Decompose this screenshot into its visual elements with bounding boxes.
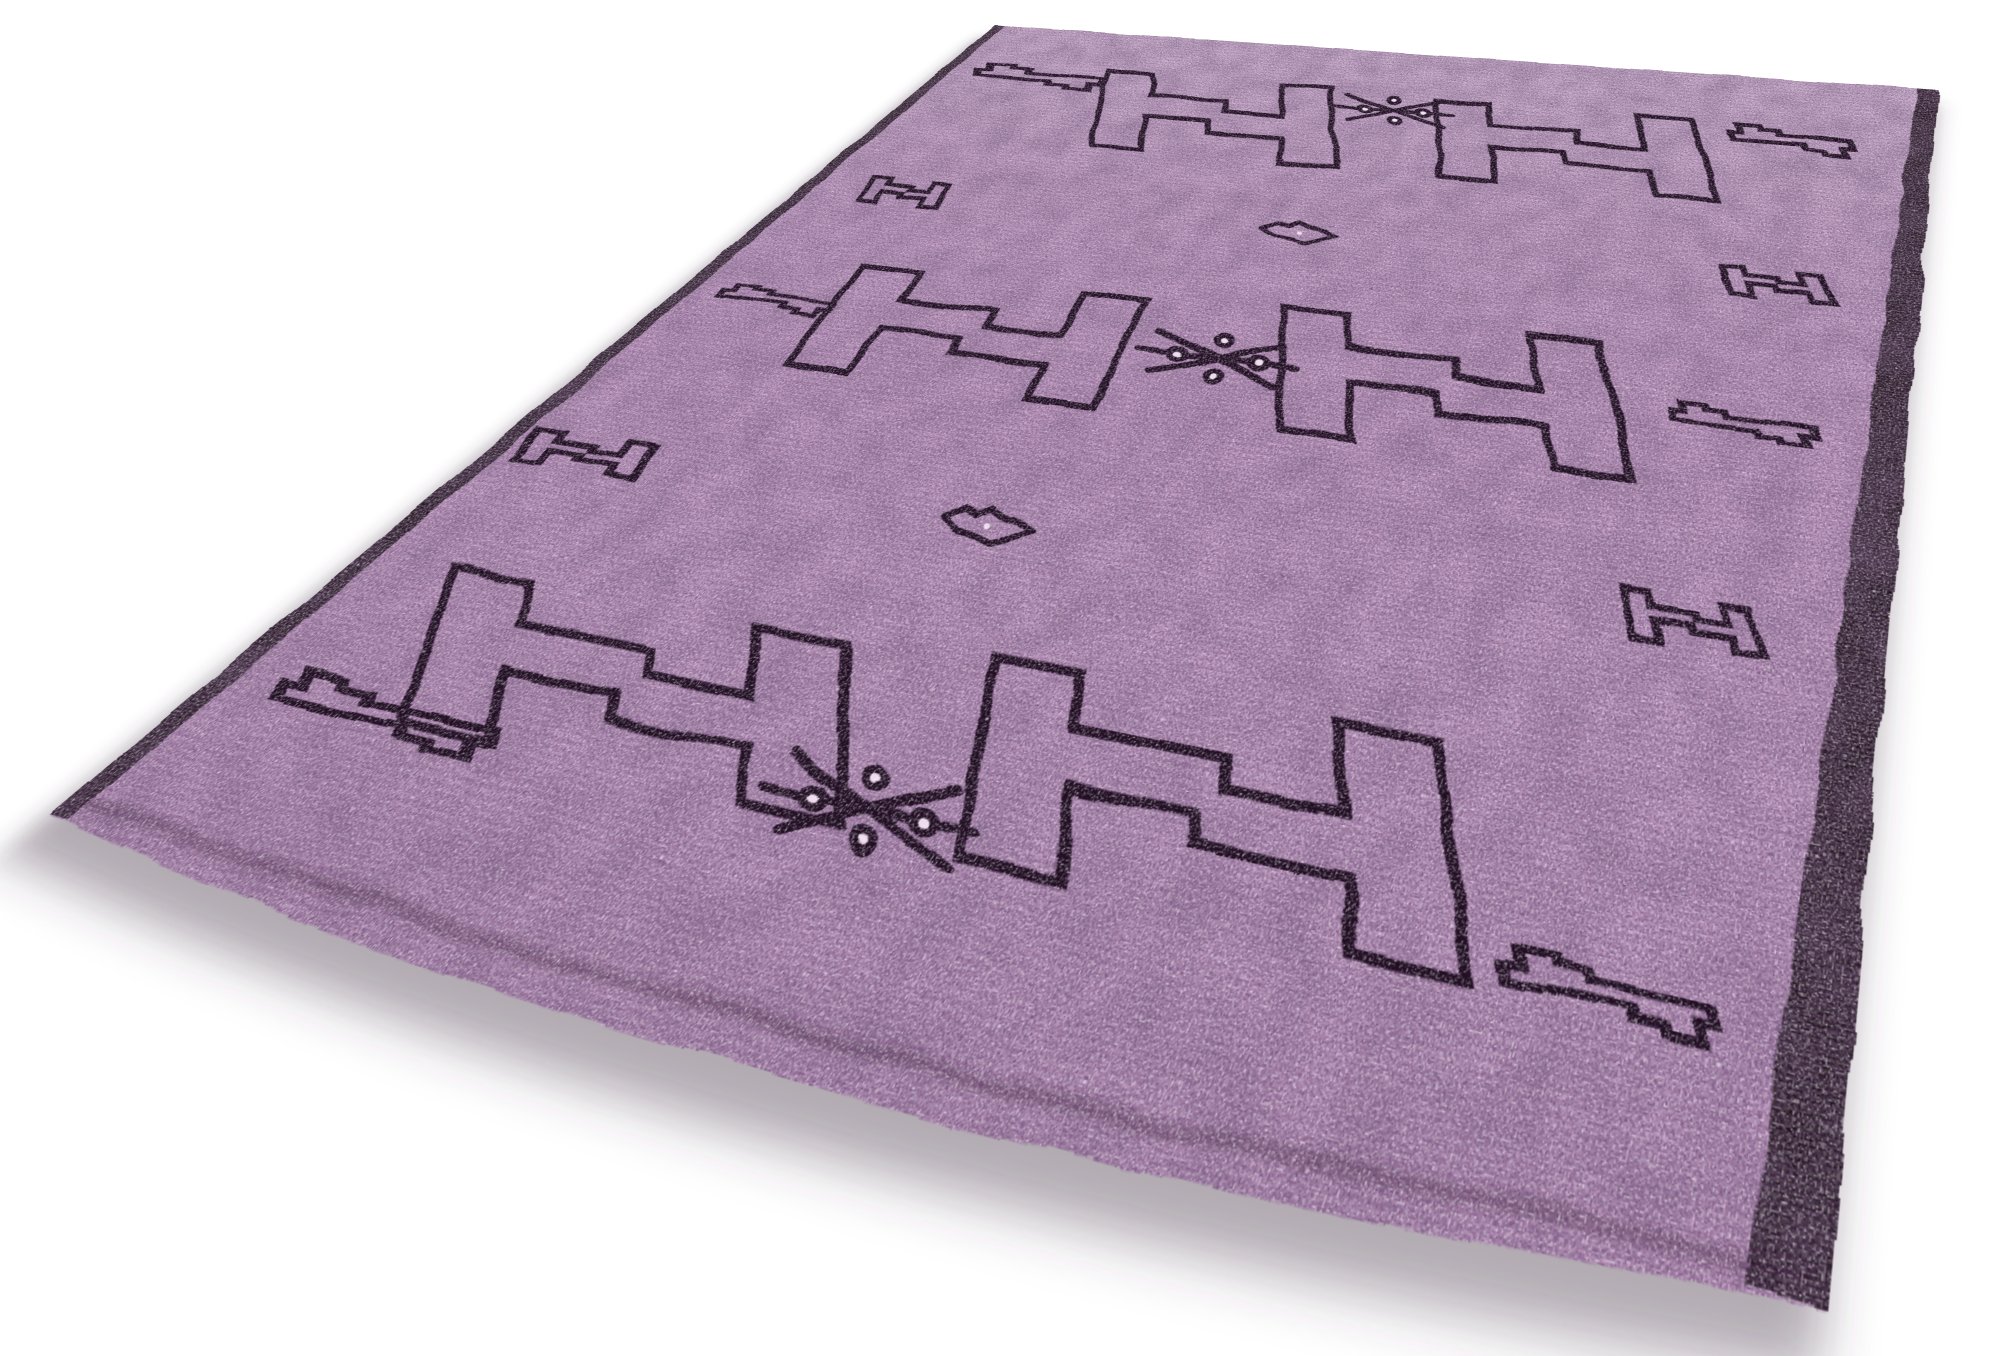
photo-canvas [0, 0, 2000, 1356]
rug-photo [50, 25, 1939, 1307]
